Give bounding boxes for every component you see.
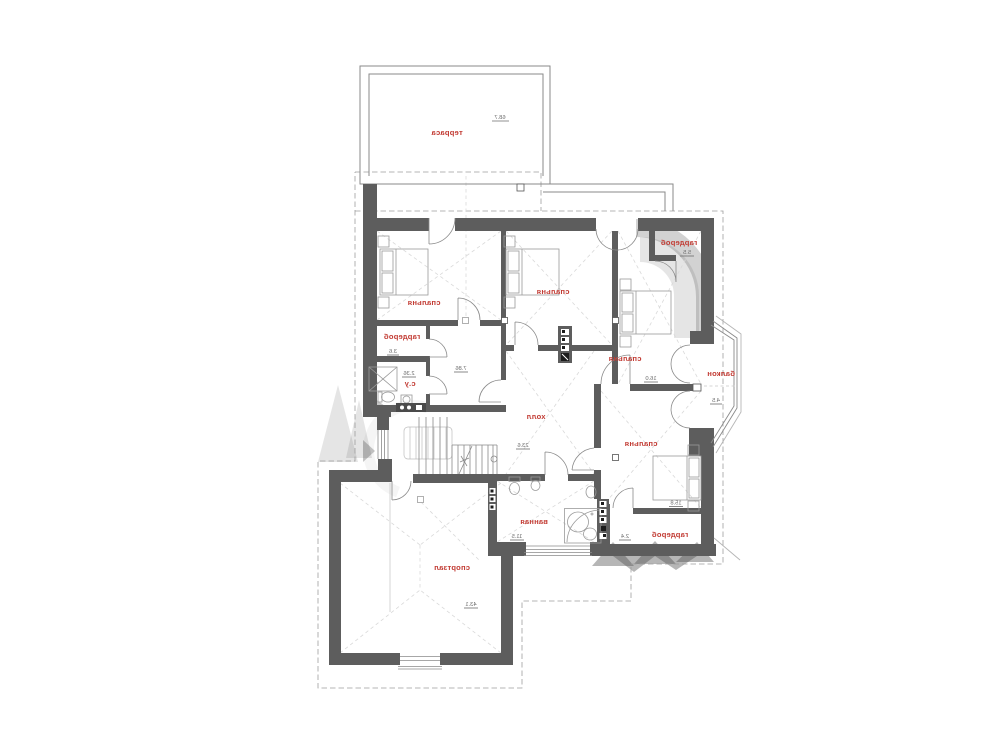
svg-text:спортзал: спортзал	[434, 563, 470, 572]
svg-text:3.6: 3.6	[389, 349, 397, 355]
svg-text:терраса: терраса	[431, 128, 463, 137]
svg-text:7.86: 7.86	[455, 366, 466, 372]
svg-text:гардероб: гардероб	[652, 530, 689, 539]
svg-text:68.7: 68.7	[494, 115, 505, 121]
svg-text:спальня: спальня	[625, 439, 658, 448]
svg-text:гардероб: гардероб	[384, 332, 421, 341]
svg-text:11.5: 11.5	[512, 534, 523, 540]
svg-text:с.у: с.у	[404, 379, 416, 388]
svg-text:ванная: ванная	[520, 517, 548, 526]
svg-text:23.6: 23.6	[517, 443, 528, 449]
svg-text:балкон: балкон	[707, 369, 735, 378]
svg-text:2.4: 2.4	[620, 534, 629, 540]
svg-text:43.1: 43.1	[465, 602, 476, 608]
svg-text:4.5: 4.5	[712, 398, 720, 404]
svg-text:2.36: 2.36	[403, 371, 414, 377]
svg-text:гардероб: гардероб	[661, 238, 698, 247]
svg-text:спальня: спальня	[537, 287, 570, 296]
svg-text:16.0: 16.0	[645, 376, 656, 382]
svg-text:5.5: 5.5	[683, 250, 691, 256]
svg-text:спальня: спальня	[609, 354, 642, 363]
svg-text:спальня: спальня	[408, 298, 441, 307]
svg-text:холл: холл	[527, 412, 546, 421]
svg-text:15.8: 15.8	[670, 501, 681, 507]
